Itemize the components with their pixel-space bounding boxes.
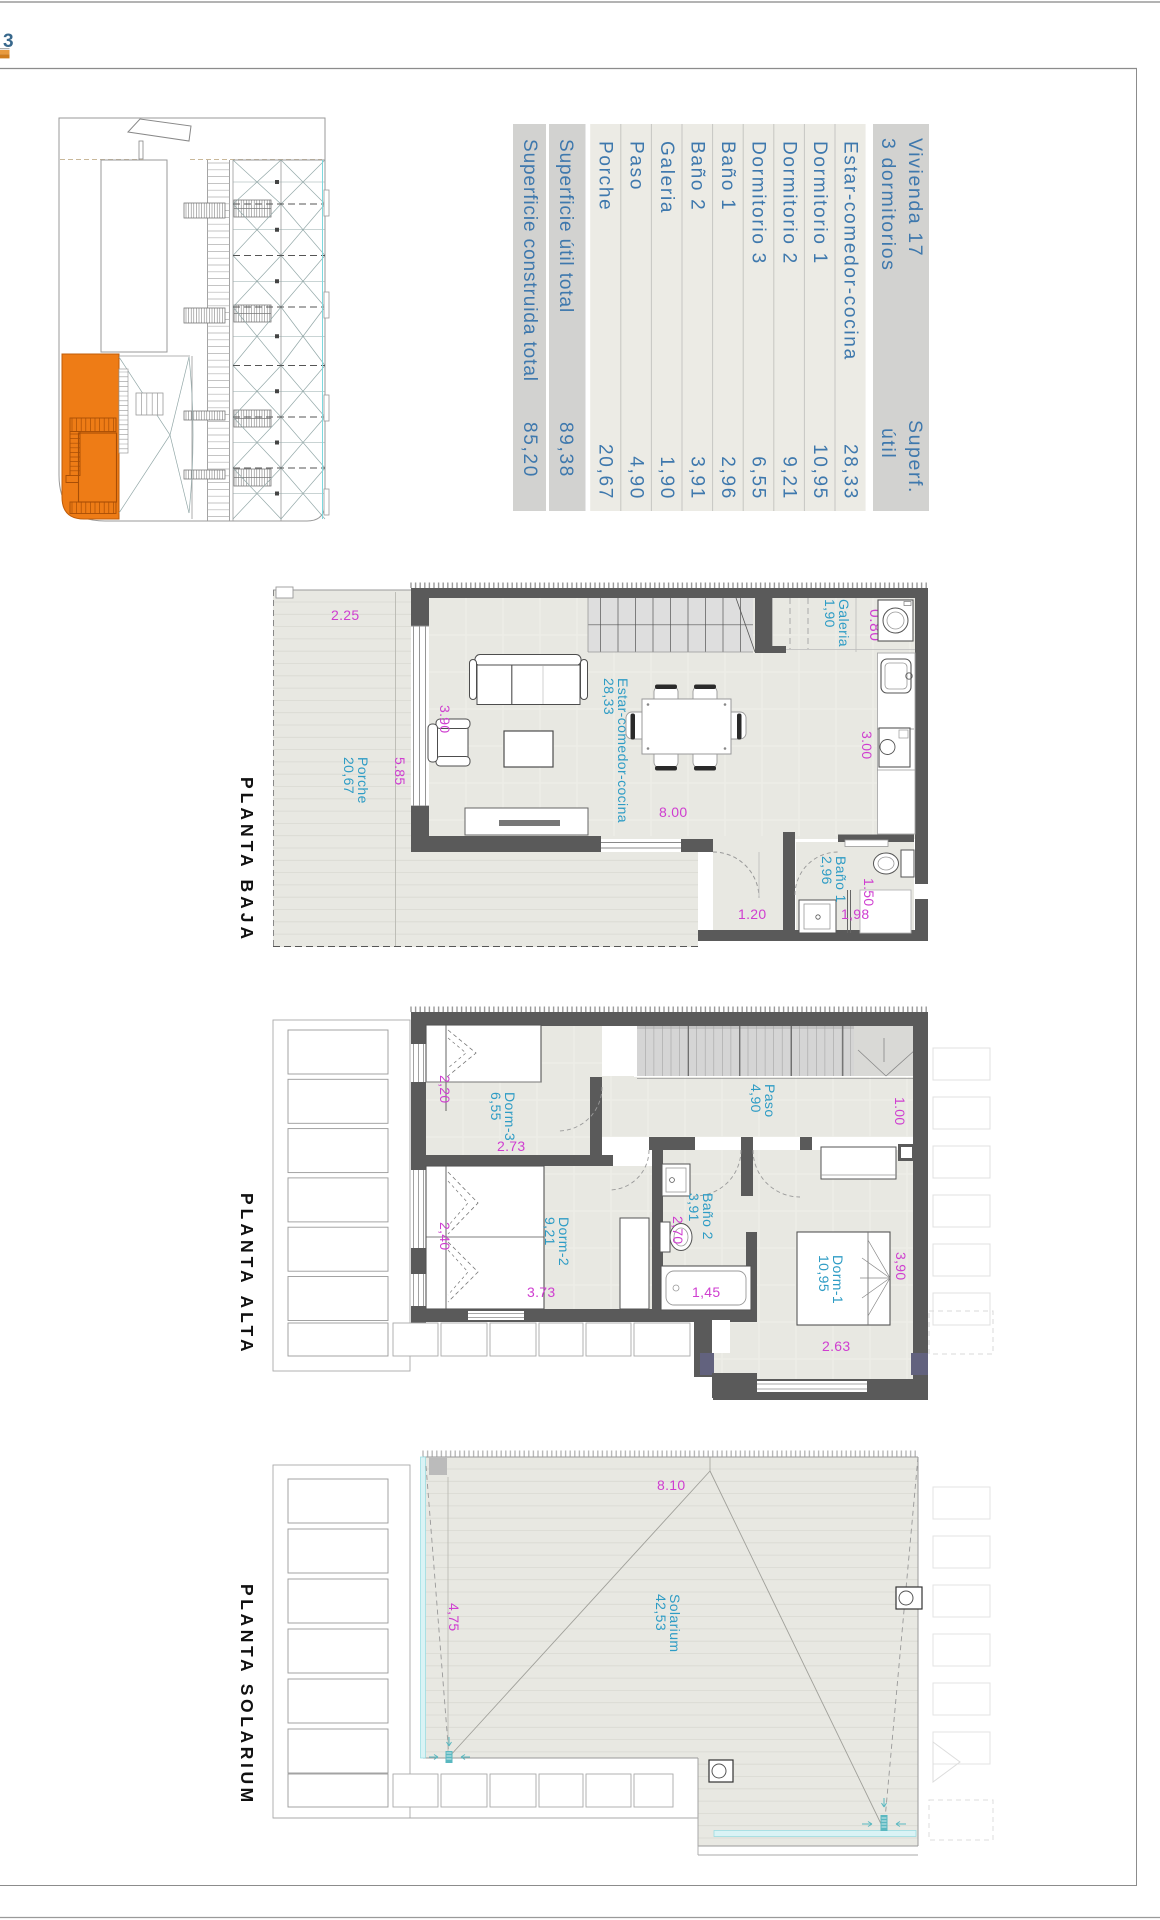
svg-text:20,67: 20,67 xyxy=(595,444,616,500)
svg-text:Galeria: Galeria xyxy=(656,141,677,214)
svg-text:2,96: 2,96 xyxy=(819,856,835,885)
svg-text:Porche: Porche xyxy=(595,141,616,211)
svg-text:3.90: 3.90 xyxy=(437,705,453,733)
svg-text:Dormitorio 2: Dormitorio 2 xyxy=(778,141,799,265)
svg-text:1.20: 1.20 xyxy=(738,906,766,922)
svg-text:2.25: 2.25 xyxy=(331,607,359,623)
svg-text:3,91: 3,91 xyxy=(687,456,708,500)
svg-text:1,90: 1,90 xyxy=(822,599,838,628)
svg-text:Dormitorio 3: Dormitorio 3 xyxy=(748,141,769,265)
svg-text:PLANTA SOLARIUM: PLANTA SOLARIUM xyxy=(237,1584,257,1806)
svg-text:útil: útil xyxy=(877,428,899,459)
svg-text:PLANTA BAJA: PLANTA BAJA xyxy=(237,777,257,943)
svg-text:28,33: 28,33 xyxy=(601,678,617,715)
svg-text:6,55: 6,55 xyxy=(748,456,769,500)
svg-text:Superficie construida total: Superficie construida total xyxy=(519,139,540,382)
svg-text:3,90: 3,90 xyxy=(893,1252,909,1280)
svg-text:9,21: 9,21 xyxy=(542,1217,558,1246)
svg-text:1,90: 1,90 xyxy=(656,456,677,500)
svg-text:1,45: 1,45 xyxy=(692,1284,720,1300)
svg-text:Paso: Paso xyxy=(625,141,646,191)
svg-text:10,95: 10,95 xyxy=(809,444,830,500)
svg-text:Estar-comedor-cocina: Estar-comedor-cocina xyxy=(840,141,861,361)
svg-text:Vivienda 17: Vivienda 17 xyxy=(904,138,926,257)
svg-text:Superf.: Superf. xyxy=(904,420,926,494)
svg-text:2.73: 2.73 xyxy=(497,1138,525,1154)
svg-text:2,96: 2,96 xyxy=(717,456,738,500)
svg-text:2,40: 2,40 xyxy=(437,1222,453,1250)
svg-text:PLANTA ALTA: PLANTA ALTA xyxy=(237,1193,257,1356)
svg-text:3,91: 3,91 xyxy=(686,1193,702,1222)
svg-text:2,20: 2,20 xyxy=(437,1075,453,1103)
svg-text:20,67: 20,67 xyxy=(341,757,357,794)
svg-text:1.50: 1.50 xyxy=(861,878,877,906)
svg-text:4,90: 4,90 xyxy=(625,456,646,500)
svg-text:3 dormitorios: 3 dormitorios xyxy=(877,138,899,272)
svg-text:89,38: 89,38 xyxy=(555,422,576,478)
svg-text:Baño 2: Baño 2 xyxy=(687,141,708,211)
svg-text:10,95: 10,95 xyxy=(816,1255,832,1292)
svg-text:Baño 1: Baño 1 xyxy=(717,141,738,211)
svg-text:85,20: 85,20 xyxy=(519,422,540,478)
svg-text:9,21: 9,21 xyxy=(778,456,799,500)
svg-text:4,90: 4,90 xyxy=(748,1084,764,1113)
svg-text:3.73: 3.73 xyxy=(527,1284,555,1300)
svg-text:6,55: 6,55 xyxy=(488,1092,504,1121)
svg-text:4,75: 4,75 xyxy=(446,1603,462,1631)
svg-text:1,98: 1,98 xyxy=(841,906,869,922)
svg-text:8.10: 8.10 xyxy=(657,1477,685,1493)
svg-text:Superficie útil total: Superficie útil total xyxy=(555,139,576,313)
svg-text:2.63: 2.63 xyxy=(822,1338,850,1354)
svg-text:28,33: 28,33 xyxy=(840,444,861,500)
svg-text:1.00: 1.00 xyxy=(892,1097,908,1125)
svg-text:5.85: 5.85 xyxy=(392,757,408,785)
svg-text:42,53: 42,53 xyxy=(653,1594,669,1631)
svg-text:Dormitorio 1: Dormitorio 1 xyxy=(809,141,830,265)
svg-text:3.00: 3.00 xyxy=(859,731,875,759)
svg-text:8.00: 8.00 xyxy=(659,804,687,820)
svg-text:2,70: 2,70 xyxy=(670,1216,686,1244)
